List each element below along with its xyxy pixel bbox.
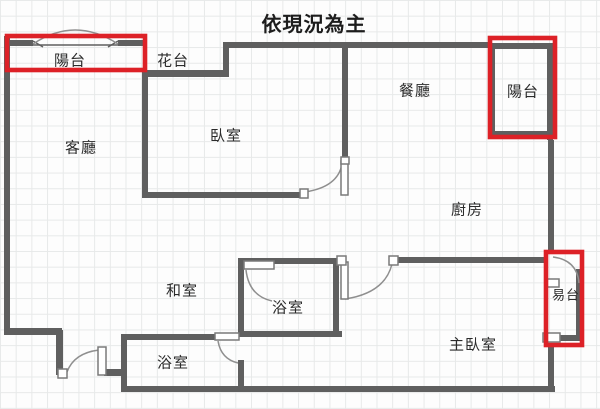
outer-wall-right-upper xyxy=(548,140,554,252)
room-label-balcony-top-right: 陽台 xyxy=(507,83,539,100)
bath-middle-door-leaf xyxy=(244,261,274,269)
room-label-tatami-room: 和室 xyxy=(166,282,198,299)
room-label-bathroom-middle: 浴室 xyxy=(272,299,304,316)
room-label-bedroom: 臥室 xyxy=(210,127,242,144)
plan-title: 依現況為主 xyxy=(262,8,367,37)
floor-plan: 陽台花台客廳臥室餐廳陽台廚房和室浴室浴室主臥室易台 依現況為主 xyxy=(0,0,600,409)
room-label-master-bedroom: 主臥室 xyxy=(449,336,497,353)
bedroom-door-arc xyxy=(305,164,342,192)
outer-wall-top xyxy=(223,42,491,48)
entry-door-leaf xyxy=(98,347,106,375)
room-label-kitchen: 廚房 xyxy=(451,200,483,218)
flower-bed-step-wall xyxy=(223,42,229,77)
balcony-tr-top-wall xyxy=(490,43,553,49)
balcony-tl-wall-right xyxy=(118,40,145,46)
bath-bottom-left-wall xyxy=(121,335,127,392)
balcony-tr-right-wall xyxy=(547,43,553,140)
room-label-bathroom-bottom: 浴室 xyxy=(157,354,189,371)
balcony-tl-wall-left xyxy=(9,40,33,46)
hall-door-jamb-right xyxy=(389,256,398,265)
bedroom-door-leaf xyxy=(341,161,348,195)
room-label-flower-bed: 花台 xyxy=(157,52,189,69)
bath-middle-bottom-wall xyxy=(238,331,342,337)
bath-bottom-door-arc xyxy=(218,341,238,363)
hall-door-arc xyxy=(345,264,392,299)
bay-window-tick-left xyxy=(33,41,43,47)
outer-wall-bottom-left-step-h xyxy=(4,328,62,335)
bedroom-dining-divider xyxy=(342,42,348,161)
room-label-living-room: 客廳 xyxy=(65,138,97,156)
outer-wall-right-lower xyxy=(548,347,554,392)
entry-door-arc xyxy=(67,350,99,372)
bedroom-door-top-jamb xyxy=(341,157,349,164)
room-label-dining-room: 餐廳 xyxy=(399,81,431,99)
outer-wall-left xyxy=(4,36,10,332)
bath-bottom-right-wall xyxy=(238,360,244,392)
bath-middle-right-wall xyxy=(333,258,339,337)
bath-bottom-door-leaf xyxy=(215,333,239,340)
entry-door-jamb xyxy=(58,369,67,378)
room-label-balcony-top-left: 陽台 xyxy=(54,52,86,69)
bath-middle-left-wall xyxy=(238,258,244,337)
hall-door-jamb-left xyxy=(337,256,346,265)
bath-bottom-top-wall xyxy=(121,334,218,340)
living-bedroom-divider xyxy=(142,70,148,198)
floor-plan-svg: 陽台花台客廳臥室餐廳陽台廚房和室浴室浴室主臥室易台 xyxy=(0,0,600,409)
bedroom-door-jamb xyxy=(300,189,308,198)
outer-wall-bottom xyxy=(121,386,555,392)
hall-door-leaf xyxy=(341,262,348,299)
bath-middle-door-arc xyxy=(246,270,272,301)
bedroom-bottom-wall xyxy=(142,192,305,198)
room-label-balcony-rear: 易台 xyxy=(552,288,580,303)
flower-bed-wall xyxy=(145,70,229,77)
kitchen-master-wall xyxy=(395,257,548,263)
bay-window-tick-right xyxy=(108,41,118,47)
